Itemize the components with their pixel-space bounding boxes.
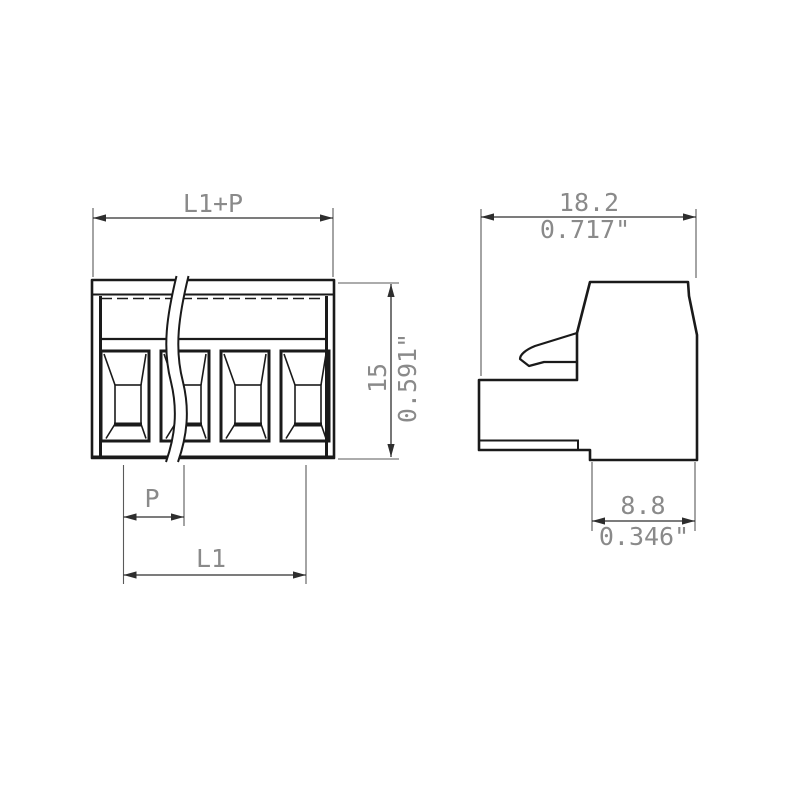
dimension-length: L1 bbox=[124, 465, 307, 584]
dim-label-foot-inch: 0.346" bbox=[599, 522, 689, 551]
dimension-foot-side: 8.8 0.346" bbox=[592, 462, 695, 551]
terminal-openings bbox=[101, 351, 329, 441]
dim-label-pitch: P bbox=[144, 484, 159, 513]
dim-label-width-inch: 0.717" bbox=[540, 215, 630, 244]
dimension-overall-width-front: L1+P bbox=[93, 189, 333, 277]
front-body-outline bbox=[92, 280, 334, 458]
terminal-opening bbox=[101, 351, 149, 441]
dim-label-height-inch: 0.591" bbox=[393, 333, 422, 423]
side-body-outline bbox=[479, 282, 697, 460]
terminal-opening bbox=[281, 351, 329, 441]
terminal-opening bbox=[221, 351, 269, 441]
side-latch-hook bbox=[520, 333, 577, 366]
front-view bbox=[92, 276, 334, 462]
dim-label-height-mm: 15 bbox=[363, 363, 392, 393]
side-view bbox=[479, 282, 697, 460]
technical-drawing: L1+P 15 0.591" P L1 bbox=[0, 0, 800, 800]
dim-label-l1p: L1+P bbox=[183, 189, 243, 218]
side-foot-strip bbox=[479, 441, 578, 451]
dim-label-width-mm: 18.2 bbox=[559, 188, 619, 217]
dimension-height-front: 15 0.591" bbox=[338, 283, 422, 459]
dimension-pitch: P bbox=[124, 465, 185, 584]
dim-label-foot-mm: 8.8 bbox=[620, 491, 665, 520]
dim-label-length: L1 bbox=[196, 544, 226, 573]
